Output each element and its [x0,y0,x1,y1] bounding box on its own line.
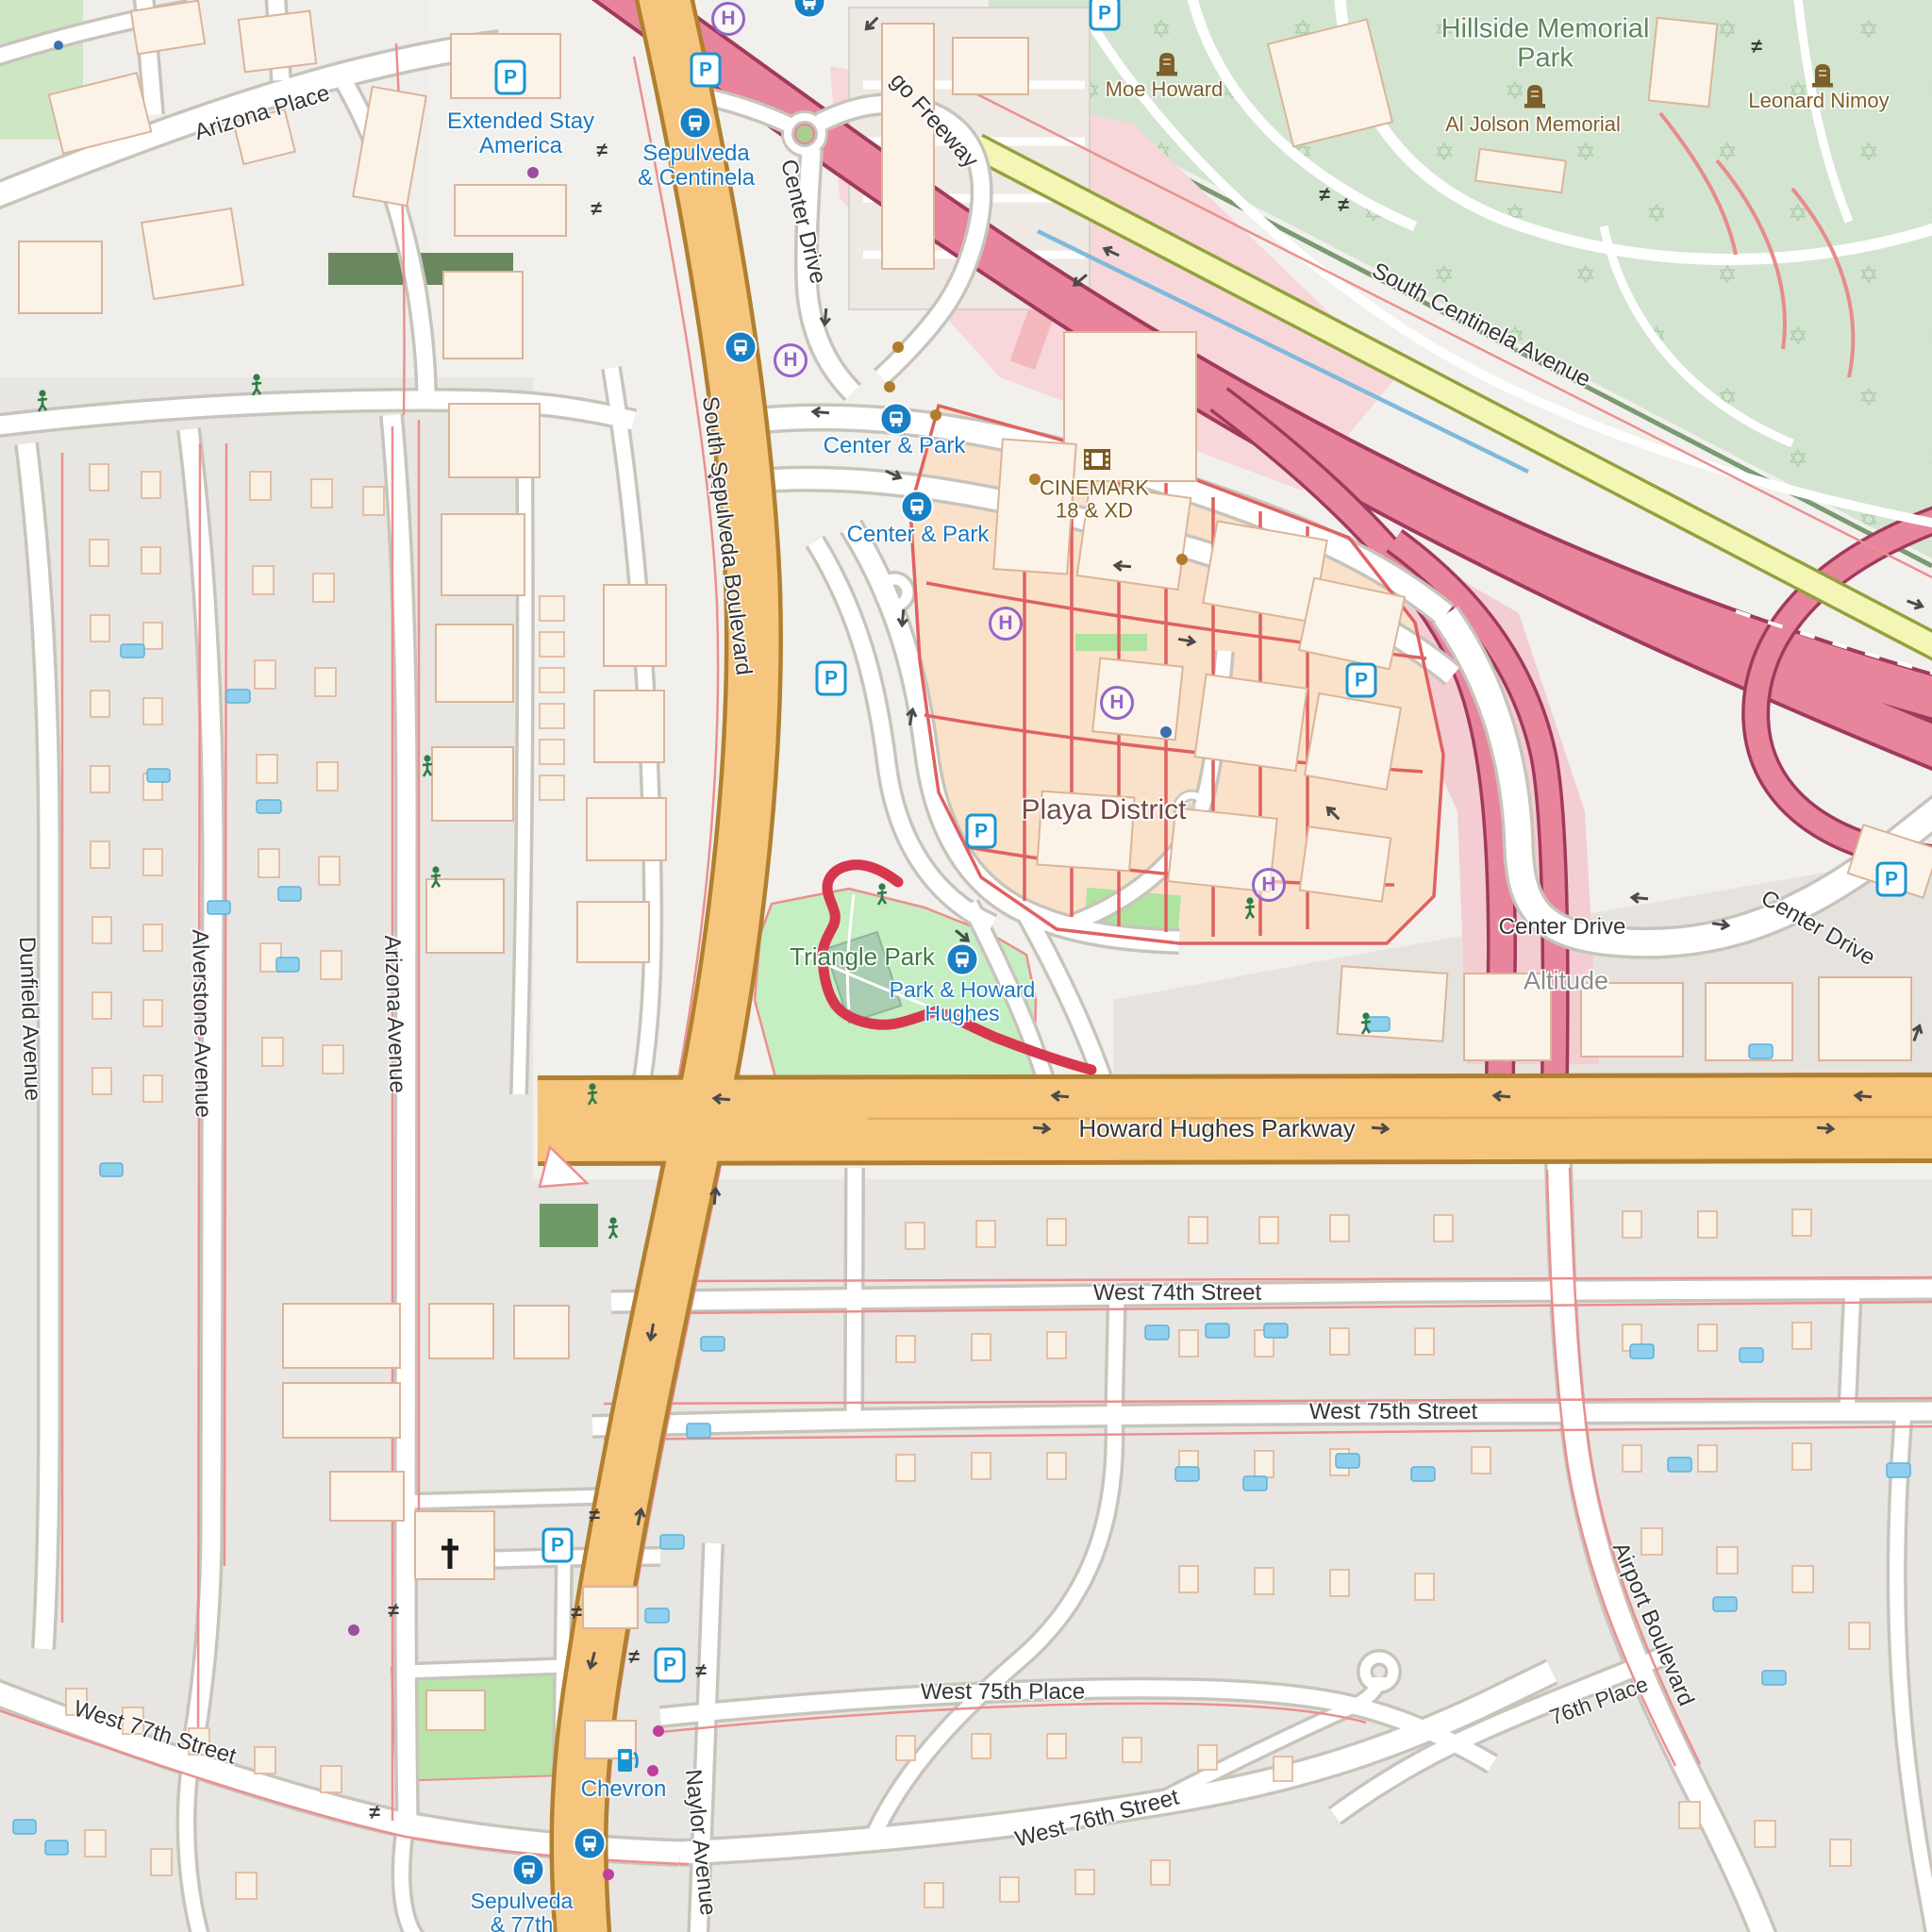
bus-stop-icon[interactable] [574,1827,607,1860]
parking-icon[interactable]: P [542,1528,574,1563]
street-label-south-sepulveda: South Sepulveda Boulevard [697,395,756,677]
park-howard-line1: Park & Howard [890,977,1036,1002]
street-label-south-centinela: South Centinela Avenue [1368,258,1594,392]
street-label-arizona-place: Arizona Place [192,81,332,145]
bus-stop-icon[interactable] [793,0,826,19]
bus-stop-icon[interactable] [679,107,712,140]
place-label-triangle-park[interactable]: Triangle Park [790,943,935,970]
bus-glyph [908,498,926,516]
street-label-naylor-avenue: Naylor Avenue [680,1768,720,1917]
map-canvas[interactable]: ✡ ✡ [0,0,1932,1932]
bus-stop-icon[interactable] [724,331,758,364]
parking-glyph: P [699,58,712,81]
helipad-icon: H [1100,686,1134,720]
bus-glyph [687,114,705,132]
street-label-arizona-avenue: Arizona Avenue [379,935,409,1093]
place-label-al-jolson-memorial[interactable]: Al Jolson Memorial [1445,113,1621,136]
helipad-glyph: H [783,349,797,372]
parking-glyph: P [824,667,838,690]
hillside-line2: Park [1517,43,1574,74]
place-label-extended-stay-america[interactable]: Extended Stay America [447,109,594,158]
transit-label-sepulveda-77th[interactable]: Sepulveda & 77th [471,1890,574,1932]
helipad-icon: H [711,2,745,36]
bus-stop-icon[interactable] [946,943,979,976]
parking-glyph: P [974,820,988,842]
transit-label-sepulveda-centinela[interactable]: Sepulveda & Centinela [638,142,755,191]
sep-cent-line2: & Centinela [638,165,755,191]
place-label-playa-district[interactable]: Playa District [1021,795,1186,825]
place-label-moe-howard[interactable]: Moe Howard [1106,78,1224,101]
helipad-glyph: H [1261,874,1275,896]
parking-icon[interactable]: P [495,60,526,95]
bus-stop-icon[interactable] [880,403,913,436]
transit-label-center-and-park-a[interactable]: Center & Park [824,434,966,458]
parking-icon[interactable]: P [691,53,722,88]
street-label-center-drive-north: Center Drive [775,158,830,287]
barrier-icon: ≠ [571,1602,582,1624]
helipad-icon: H [1252,868,1286,902]
place-label-chevron[interactable]: Chevron [581,1777,667,1802]
parking-icon[interactable]: P [1346,663,1377,698]
street-label-west-77th: West 77th Street [71,1697,239,1770]
barrier-icon: ≠ [369,1802,380,1824]
street-label-west-76th: West 76th Street [1013,1785,1182,1852]
label-layer: Arizona Place Center Drive go Freeway So… [0,0,1932,1932]
helipad-glyph: H [998,612,1012,635]
parking-glyph: P [1885,868,1898,891]
barrier-icon: ≠ [591,198,602,221]
extended-stay-line2: America [479,133,562,158]
place-label-hillside-memorial-park[interactable]: Hillside Memorial Park [1441,15,1650,75]
parking-icon[interactable]: P [1090,0,1121,31]
parking-icon[interactable]: P [1876,862,1907,897]
street-label-center-drive-east-2: Center Drive [1757,886,1879,971]
parking-icon[interactable]: P [816,661,847,696]
parking-glyph: P [1355,669,1368,691]
cinemark-line1: CINEMARK [1040,475,1149,499]
street-label-dunfield-avenue: Dunfield Avenue [14,936,44,1101]
parking-glyph: P [1098,2,1111,25]
street-label-alverstone-avenue: Alverstone Avenue [187,929,214,1118]
transit-label-center-and-park-b[interactable]: Center & Park [847,523,990,547]
place-label-leonard-nimoy[interactable]: Leonard Nimoy [1748,90,1889,112]
sep-cent-line1: Sepulveda [642,141,749,166]
barrier-icon: ≠ [1319,184,1330,207]
barrier-icon: ≠ [589,1505,600,1527]
transit-label-park-and-howard-hughes[interactable]: Park & Howard Hughes [890,978,1036,1025]
cinemark-line2: 18 & XD [1056,498,1133,522]
bus-glyph [801,0,819,11]
place-label-altitude[interactable]: Altitude [1524,967,1608,994]
barrier-icon: ≠ [1338,194,1349,217]
parking-glyph: P [504,66,517,89]
barrier-icon: ≠ [628,1646,640,1669]
parking-icon[interactable]: P [966,814,997,849]
bus-stop-icon[interactable] [512,1854,545,1887]
street-label-west-75th: West 75th Street [1309,1400,1477,1424]
helipad-glyph: H [1109,691,1124,714]
bus-glyph [732,339,750,357]
street-label-west-75th-place: West 75th Place [921,1680,1085,1705]
bus-glyph [888,410,906,428]
sep77-line1: Sepulveda [471,1889,574,1913]
barrier-icon: ≠ [1751,36,1762,58]
bus-stop-icon[interactable] [901,491,934,524]
helipad-glyph: H [721,8,735,30]
extended-stay-line1: Extended Stay [447,108,594,134]
street-label-freeway: go Freeway [885,69,982,174]
sep77-line2: & 77th [491,1912,554,1932]
bus-glyph [581,1835,599,1853]
parking-glyph: P [551,1534,564,1557]
bus-glyph [520,1861,538,1879]
hillside-line1: Hillside Memorial [1441,14,1650,44]
place-label-cinemark[interactable]: CINEMARK 18 & XD [1040,476,1149,522]
helipad-icon: H [989,607,1023,641]
park-howard-line2: Hughes [924,1001,999,1025]
street-label-center-drive-east-1: Center Drive [1499,915,1626,940]
barrier-icon: ≠ [388,1600,399,1623]
street-label-west-74th: West 74th Street [1093,1281,1261,1306]
helipad-icon: H [774,343,808,377]
parking-icon[interactable]: P [655,1648,686,1683]
parking-glyph: P [663,1654,676,1676]
street-label-howard-hughes-parkway: Howard Hughes Parkway [1078,1115,1355,1141]
street-label-76th-place: 76th Place [1547,1673,1652,1730]
barrier-icon: ≠ [596,140,608,162]
bus-glyph [954,951,972,969]
barrier-icon: ≠ [695,1660,707,1683]
